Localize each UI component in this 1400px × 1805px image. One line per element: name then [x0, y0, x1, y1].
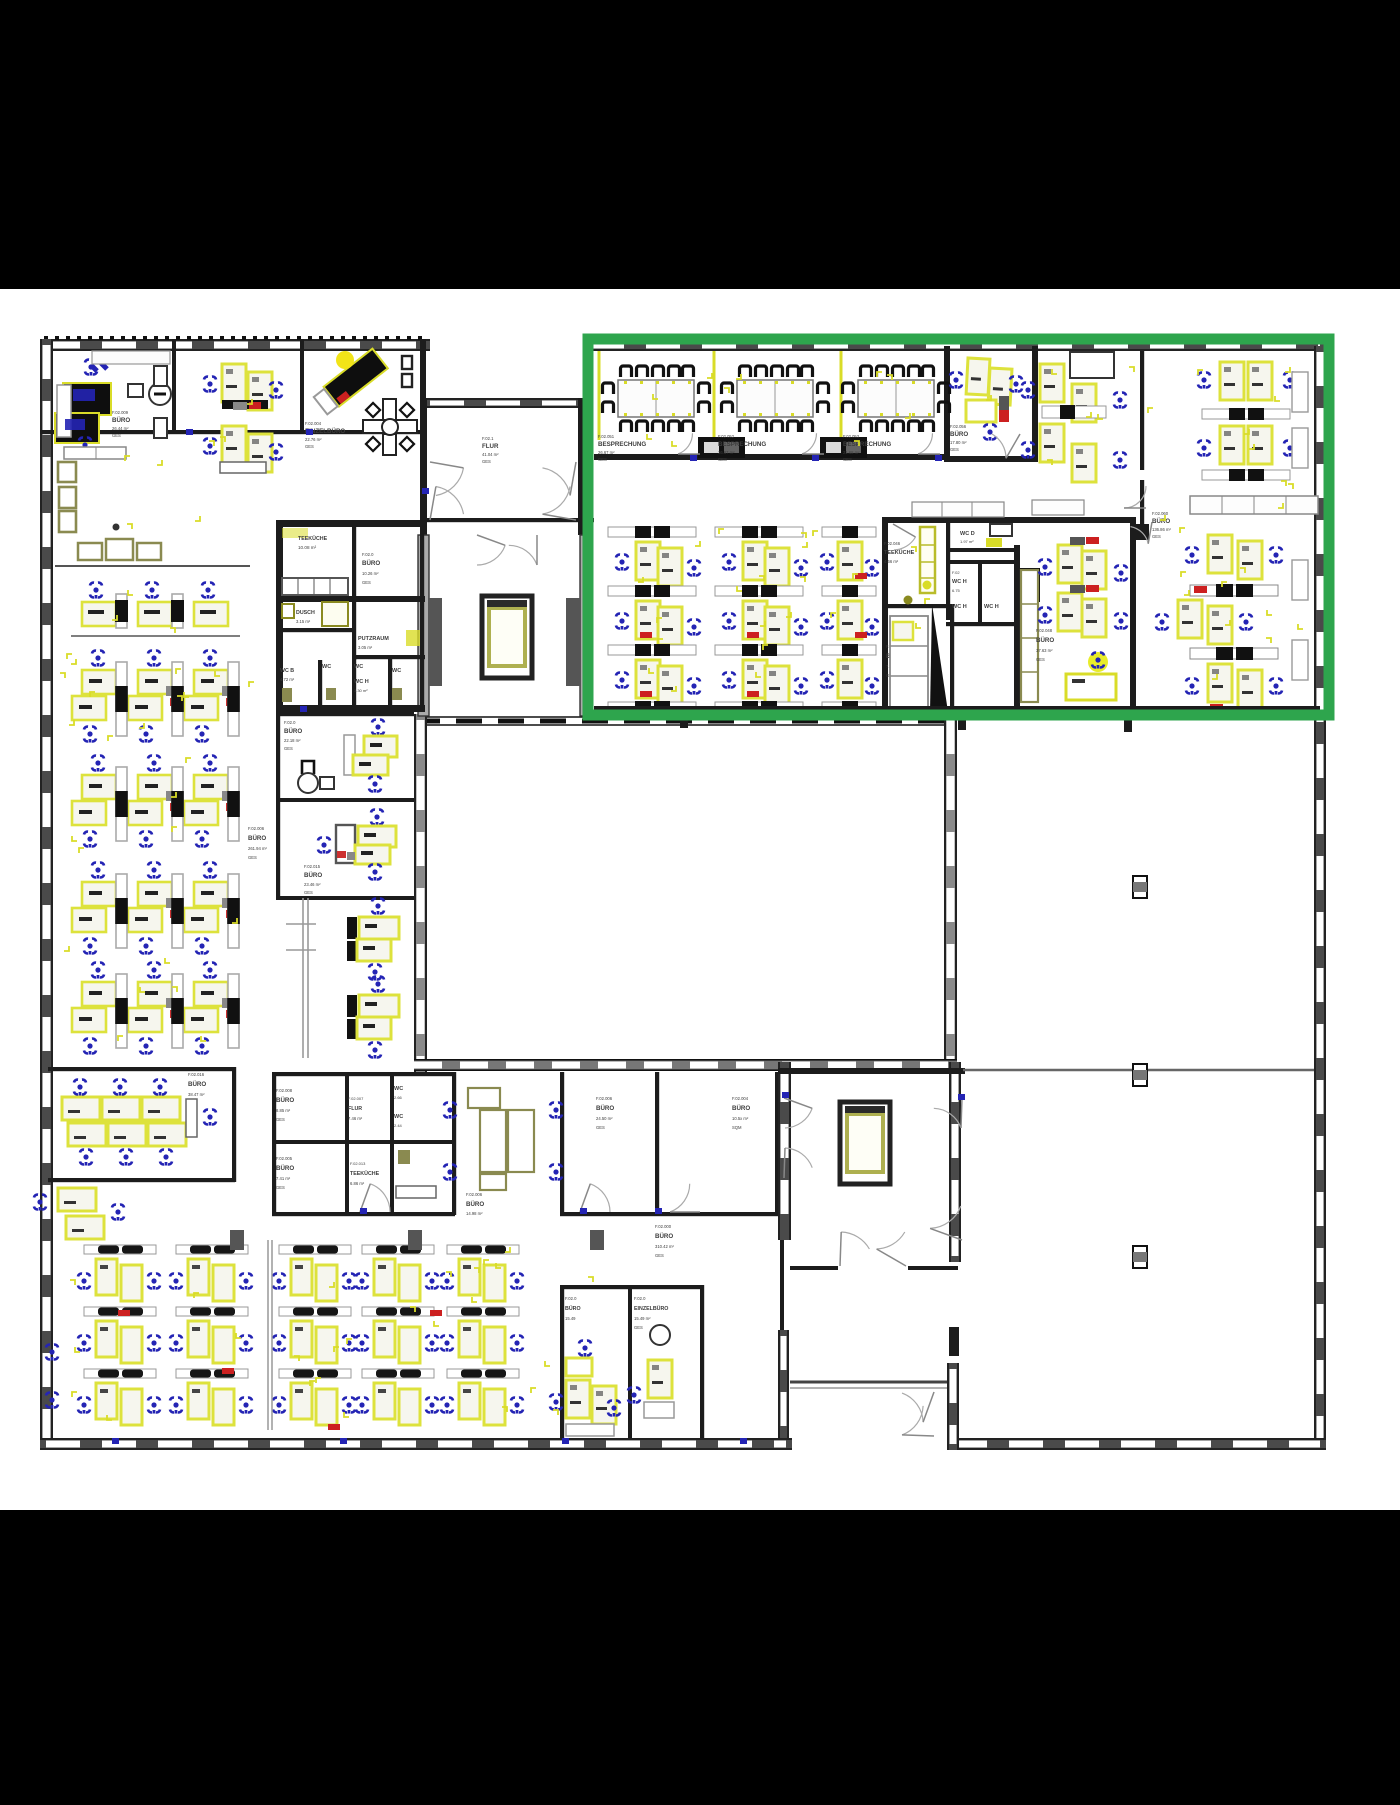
svg-text:BÜRO: BÜRO: [1152, 518, 1170, 525]
svg-text:BESPRECHUNG: BESPRECHUNG: [598, 441, 646, 448]
svg-text:4.72 m²: 4.72 m²: [280, 677, 295, 682]
svg-text:GES: GES: [598, 457, 607, 462]
svg-text:10.26 m²: 10.26 m²: [362, 571, 379, 576]
svg-text:15.49 m²: 15.49 m²: [634, 1316, 651, 1321]
svg-text:F.02.009: F.02.009: [112, 410, 129, 415]
svg-text:TEEKÜCHE: TEEKÜCHE: [298, 535, 328, 542]
svg-text:17.80 m²: 17.80 m²: [950, 440, 967, 445]
svg-text:6.75: 6.75: [952, 588, 961, 593]
svg-text:F.02.053: F.02.053: [843, 434, 860, 439]
svg-text:BESPRECHUNG: BESPRECHUNG: [718, 441, 766, 448]
svg-text:GES: GES: [1152, 534, 1161, 539]
svg-text:BÜRO: BÜRO: [732, 1105, 750, 1112]
svg-text:GES: GES: [950, 447, 959, 452]
svg-text:F.02.048: F.02.048: [1036, 628, 1053, 633]
svg-text:2.66: 2.66: [394, 1095, 403, 1100]
svg-text:F.02.0: F.02.0: [284, 720, 296, 725]
svg-text:22.76 m²: 22.76 m²: [305, 437, 322, 442]
svg-text:F.02.0: F.02.0: [634, 1296, 646, 1301]
svg-text:BÜRO: BÜRO: [466, 1201, 484, 1208]
svg-text:F.02.051: F.02.051: [598, 434, 615, 439]
svg-text:BÜRO: BÜRO: [655, 1233, 673, 1240]
svg-text:WC: WC: [394, 1114, 403, 1120]
svg-text:F.02.008: F.02.008: [276, 1088, 293, 1093]
svg-text:F.02.016: F.02.016: [188, 1072, 205, 1077]
svg-text:21.68 m²: 21.68 m²: [843, 450, 860, 455]
svg-text:GES: GES: [248, 855, 257, 860]
svg-text:136.86 m²: 136.86 m²: [1152, 527, 1171, 532]
svg-text:8.85 m²: 8.85 m²: [276, 1108, 291, 1113]
svg-text:BÜRO: BÜRO: [565, 1305, 581, 1312]
svg-text:F.02.004: F.02.004: [732, 1096, 749, 1101]
svg-text:F.02.000: F.02.000: [655, 1224, 672, 1229]
svg-text:15.49: 15.49: [565, 1316, 576, 1321]
svg-text:BÜRO: BÜRO: [304, 872, 322, 879]
svg-text:FLUR: FLUR: [482, 443, 499, 450]
svg-text:F.02.052: F.02.052: [718, 434, 735, 439]
svg-text:1.97 m²: 1.97 m²: [960, 539, 974, 544]
svg-text:24.50 m²: 24.50 m²: [596, 1116, 613, 1121]
svg-text:GES: GES: [304, 890, 313, 895]
svg-text:6.86 m²: 6.86 m²: [350, 1181, 365, 1186]
svg-text:F.02.005: F.02.005: [276, 1156, 293, 1161]
svg-text:WC H: WC H: [984, 604, 999, 610]
svg-text:261.94 m²: 261.94 m²: [248, 846, 267, 851]
svg-text:WC: WC: [354, 664, 363, 670]
svg-text:F.02.007: F.02.007: [348, 1096, 364, 1101]
svg-text:10.08 m²: 10.08 m²: [298, 545, 317, 550]
svg-text:4.66 m²: 4.66 m²: [884, 559, 899, 564]
svg-text:F.02.060: F.02.060: [1152, 511, 1169, 516]
svg-text:GES: GES: [112, 433, 121, 438]
svg-text:WC B: WC B: [280, 668, 294, 674]
svg-text:GES: GES: [634, 1325, 643, 1330]
svg-text:GES: GES: [276, 1185, 285, 1190]
svg-text:WC: WC: [392, 668, 401, 674]
svg-text:F.02.056: F.02.056: [950, 424, 967, 429]
svg-text:BÜRO: BÜRO: [248, 835, 266, 842]
svg-text:WC D: WC D: [960, 531, 975, 537]
svg-text:7.41 m²: 7.41 m²: [276, 1176, 291, 1181]
svg-text:EINZELBÜRO: EINZELBÜRO: [634, 1305, 668, 1312]
svg-text:38.47 m²: 38.47 m²: [188, 1092, 205, 1097]
svg-text:23.46 m²: 23.46 m²: [304, 882, 321, 887]
svg-text:BÜRO: BÜRO: [276, 1165, 294, 1172]
svg-text:F.02: F.02: [952, 570, 960, 575]
svg-text:GES: GES: [362, 580, 371, 585]
svg-text:F.02.013: F.02.013: [350, 1161, 366, 1166]
svg-text:WC H: WC H: [952, 579, 967, 585]
svg-text:BÜRO: BÜRO: [284, 728, 302, 735]
svg-text:TEEKÜCHE: TEEKÜCHE: [350, 1170, 380, 1177]
svg-text:F.02.1: F.02.1: [482, 436, 494, 441]
svg-text:GES: GES: [284, 746, 293, 751]
svg-text:WC: WC: [394, 1086, 403, 1092]
svg-text:14.98 m²: 14.98 m²: [466, 1211, 483, 1216]
svg-text:GES: GES: [305, 444, 314, 449]
svg-text:F.02.015: F.02.015: [304, 864, 321, 869]
svg-text:F.02.046: F.02.046: [884, 541, 901, 546]
svg-text:F.02.004: F.02.004: [305, 421, 322, 426]
svg-text:3.15 m²: 3.15 m²: [296, 619, 311, 624]
svg-text:26.67 m²: 26.67 m²: [718, 450, 735, 455]
svg-text:GES: GES: [482, 459, 491, 464]
svg-text:FLUR: FLUR: [348, 1106, 362, 1112]
svg-text:BÜRO: BÜRO: [1036, 637, 1054, 644]
svg-text:3.30 m²: 3.30 m²: [354, 688, 368, 693]
svg-text:BÜRO: BÜRO: [362, 560, 380, 567]
svg-text:3.05 m²: 3.05 m²: [358, 645, 373, 650]
svg-text:F.02.006: F.02.006: [466, 1192, 483, 1197]
svg-text:26.67 m²: 26.67 m²: [598, 450, 615, 455]
svg-text:BÜRO: BÜRO: [950, 431, 968, 438]
svg-text:10.5x m²: 10.5x m²: [732, 1116, 749, 1121]
svg-text:7.46 m²: 7.46 m²: [348, 1116, 363, 1121]
svg-text:GES: GES: [718, 457, 727, 462]
svg-text:37.63 m²: 37.63 m²: [1036, 648, 1053, 653]
svg-text:WC H: WC H: [952, 604, 967, 610]
svg-text:DUSCH: DUSCH: [296, 610, 315, 616]
svg-text:26.44 m²: 26.44 m²: [112, 426, 129, 431]
svg-text:F.02.006: F.02.006: [248, 826, 265, 831]
svg-text:BÜRO: BÜRO: [188, 1081, 206, 1088]
svg-text:TEEKÜCHE: TEEKÜCHE: [884, 549, 915, 556]
svg-text:41.04 m²: 41.04 m²: [482, 452, 499, 457]
svg-text:WC H: WC H: [354, 679, 369, 685]
svg-text:22.18 m²: 22.18 m²: [284, 738, 301, 743]
svg-text:BÜRO: BÜRO: [112, 417, 130, 424]
svg-text:GES: GES: [1036, 657, 1045, 662]
svg-text:F.02.0: F.02.0: [362, 552, 374, 557]
svg-text:GES: GES: [843, 457, 852, 462]
svg-text:WC: WC: [322, 664, 331, 670]
svg-text:BÜRO: BÜRO: [276, 1097, 294, 1104]
svg-text:SQM: SQM: [732, 1125, 742, 1130]
svg-text:GES: GES: [596, 1125, 605, 1130]
svg-text:GES: GES: [276, 1117, 285, 1122]
svg-text:BÜRO: BÜRO: [596, 1105, 614, 1112]
svg-text:310.42 m²: 310.42 m²: [655, 1244, 674, 1249]
svg-text:BESPRECHUNG: BESPRECHUNG: [843, 441, 891, 448]
svg-text:GES: GES: [655, 1253, 664, 1258]
svg-text:F.02.006: F.02.006: [596, 1096, 613, 1101]
svg-text:F.02.0: F.02.0: [565, 1296, 577, 1301]
svg-text:2.44: 2.44: [394, 1123, 403, 1128]
svg-text:PUTZRAUM: PUTZRAUM: [358, 636, 389, 642]
